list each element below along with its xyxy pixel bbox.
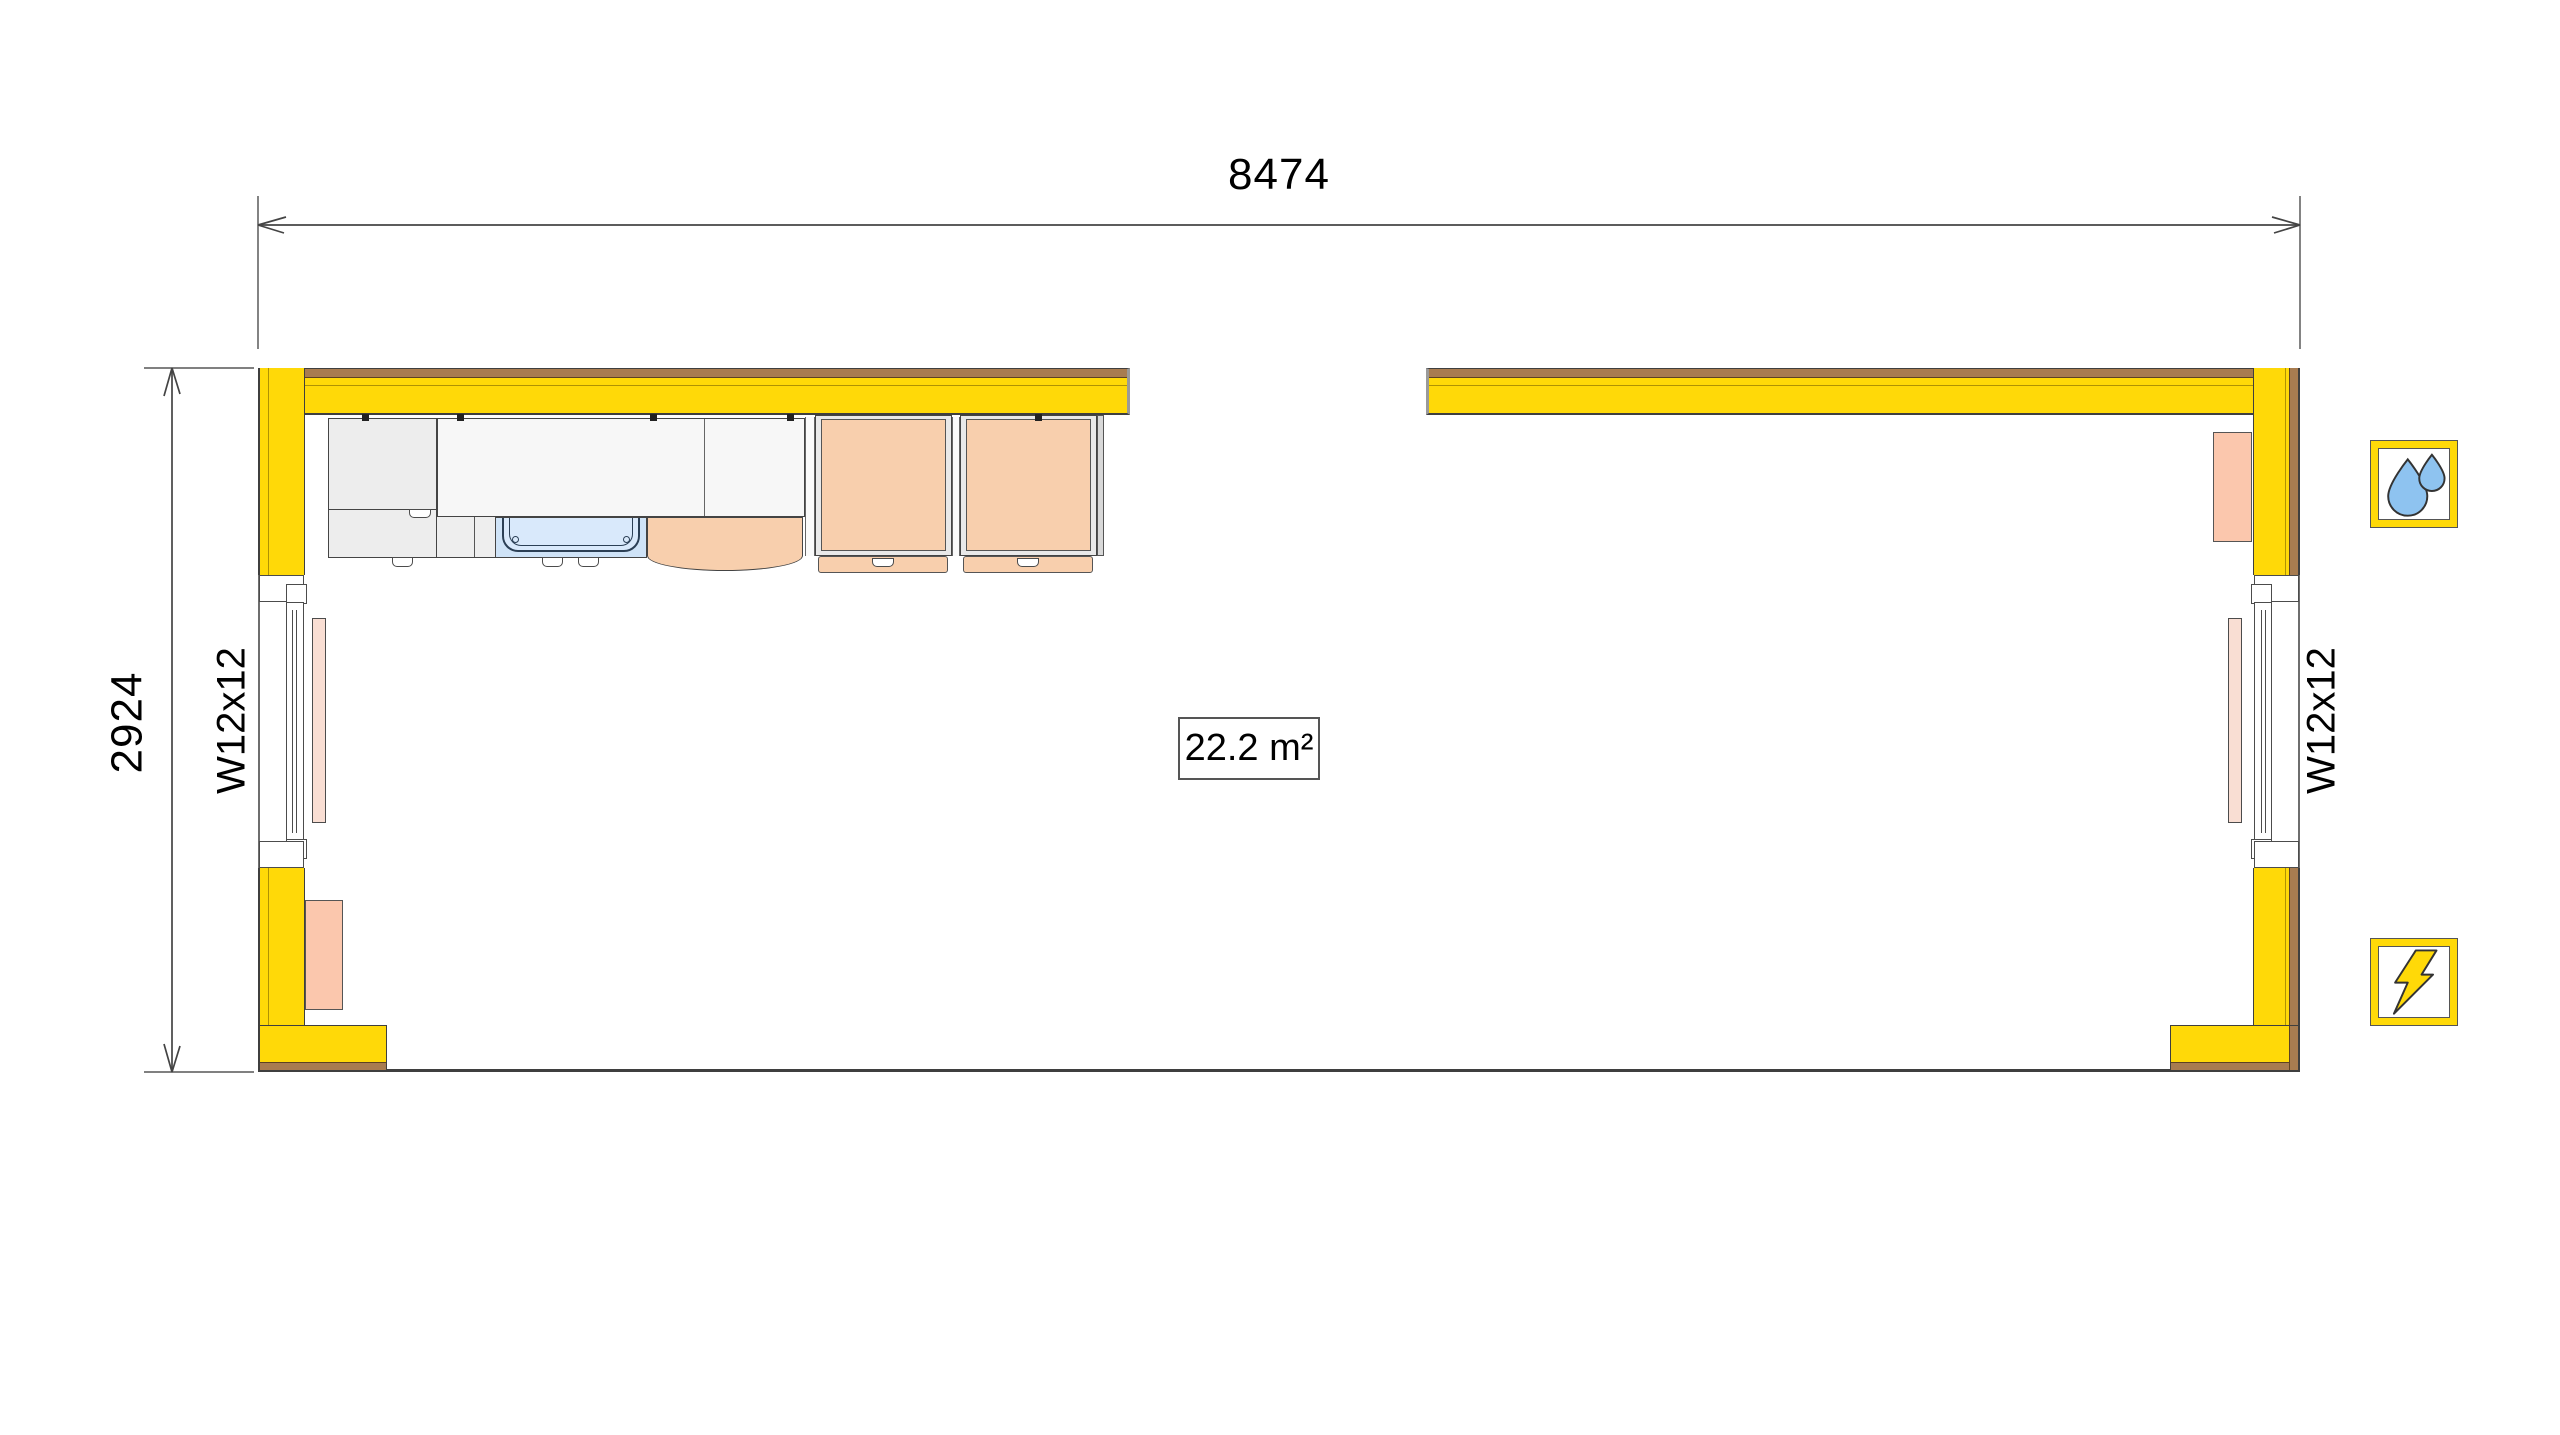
area-label[interactable]: 22.2 m²: [1178, 717, 1320, 780]
lightning-bolt-glyph: [2379, 947, 2448, 1016]
wall-tick: [650, 414, 657, 421]
cabinet-end-panel: [1097, 415, 1104, 556]
drawer-handle: [872, 558, 894, 567]
window-outer-face: [2298, 575, 2300, 868]
wall-tick: [1035, 414, 1042, 421]
sink-basin: [502, 517, 640, 552]
radiator-top-right[interactable]: [2213, 432, 2252, 542]
cabinet-handle: [392, 557, 413, 567]
window-jamb-tab: [286, 584, 307, 604]
cabinet-front: [821, 419, 946, 551]
area-value: 22.2 m²: [1185, 727, 1314, 770]
cabinet-tall[interactable]: [328, 418, 437, 558]
water-icon-inner: [2378, 448, 2450, 520]
radiator-bottom-left[interactable]: [305, 900, 343, 1010]
dishwasher[interactable]: [647, 517, 803, 556]
wall-left-lower[interactable]: [258, 868, 305, 1025]
sink[interactable]: [495, 517, 647, 558]
dishwasher-door-arc: [647, 555, 803, 571]
wall-stub-bottom-right[interactable]: [2170, 1025, 2300, 1072]
wall-trim: [2171, 1062, 2298, 1070]
width-dimension-label: 8474: [1154, 150, 1404, 200]
wall-right-upper[interactable]: [2253, 368, 2300, 575]
window-label-left: W12x12: [210, 621, 255, 821]
wall-trim: [2289, 368, 2298, 575]
wall-trim: [2289, 1026, 2298, 1070]
wall-top-right[interactable]: [1426, 368, 2300, 415]
cabinet-drawer: [818, 556, 948, 573]
wall-trim: [1429, 369, 2300, 378]
wall-top-left[interactable]: [258, 368, 1130, 415]
lightning-icon-inner: [2378, 946, 2450, 1018]
lightning-icon[interactable]: [2370, 938, 2458, 1026]
wall-trim: [258, 369, 1127, 378]
wall-layer-line: [1429, 385, 2300, 386]
wall-layer-line: [268, 868, 269, 1025]
wall-left-upper[interactable]: [258, 368, 305, 575]
window-jamb-bottom: [2254, 841, 2299, 868]
window-jamb-tab: [2251, 584, 2272, 604]
wall-layer-line: [2285, 368, 2286, 575]
window-jamb-bottom: [259, 841, 304, 868]
cabinet-front: [966, 419, 1091, 551]
cabinet-filler: [952, 417, 960, 556]
cabinet-handle: [542, 557, 563, 567]
wall-tick: [362, 414, 369, 421]
cabinet-handle: [409, 509, 431, 518]
height-dimension-label: 2924: [105, 623, 150, 823]
wall-right-lower[interactable]: [2253, 868, 2300, 1025]
window-glass: [2261, 610, 2266, 833]
water-drops-glyph: [2379, 449, 2448, 518]
wall-trim: [2289, 868, 2298, 1025]
window-outer-face: [258, 575, 260, 868]
window-sill-right: [2228, 618, 2242, 823]
wall-trim: [260, 1062, 386, 1070]
cabinet-peach-1[interactable]: [815, 415, 952, 556]
wall-layer-line: [258, 385, 1127, 386]
wall-stub-bottom-left[interactable]: [258, 1025, 387, 1072]
wall-layer-line: [2285, 868, 2286, 1025]
wall-layer-line: [268, 368, 269, 575]
cabinet-peach-2[interactable]: [960, 415, 1097, 556]
floor-edge-line: [258, 1069, 2300, 1072]
window-label-right: W12x12: [2300, 621, 2345, 821]
wall-tick: [457, 414, 464, 421]
water-icon[interactable]: [2370, 440, 2458, 528]
window-glass: [292, 610, 297, 833]
countertop[interactable]: [437, 418, 805, 517]
cabinet-filler: [805, 417, 815, 556]
counter-seam: [704, 419, 705, 516]
cabinet-handle: [578, 557, 599, 567]
drawer-handle: [1017, 558, 1039, 567]
window-sill-left: [312, 618, 326, 823]
floor-plan: 8474 2924 W12x12 W12x12: [0, 0, 2560, 1435]
sink-basin-inner: [509, 517, 633, 546]
sink-drain: [512, 536, 519, 543]
wall-tick: [787, 414, 794, 421]
sink-drain: [623, 536, 630, 543]
cabinet-drawer: [963, 556, 1093, 573]
